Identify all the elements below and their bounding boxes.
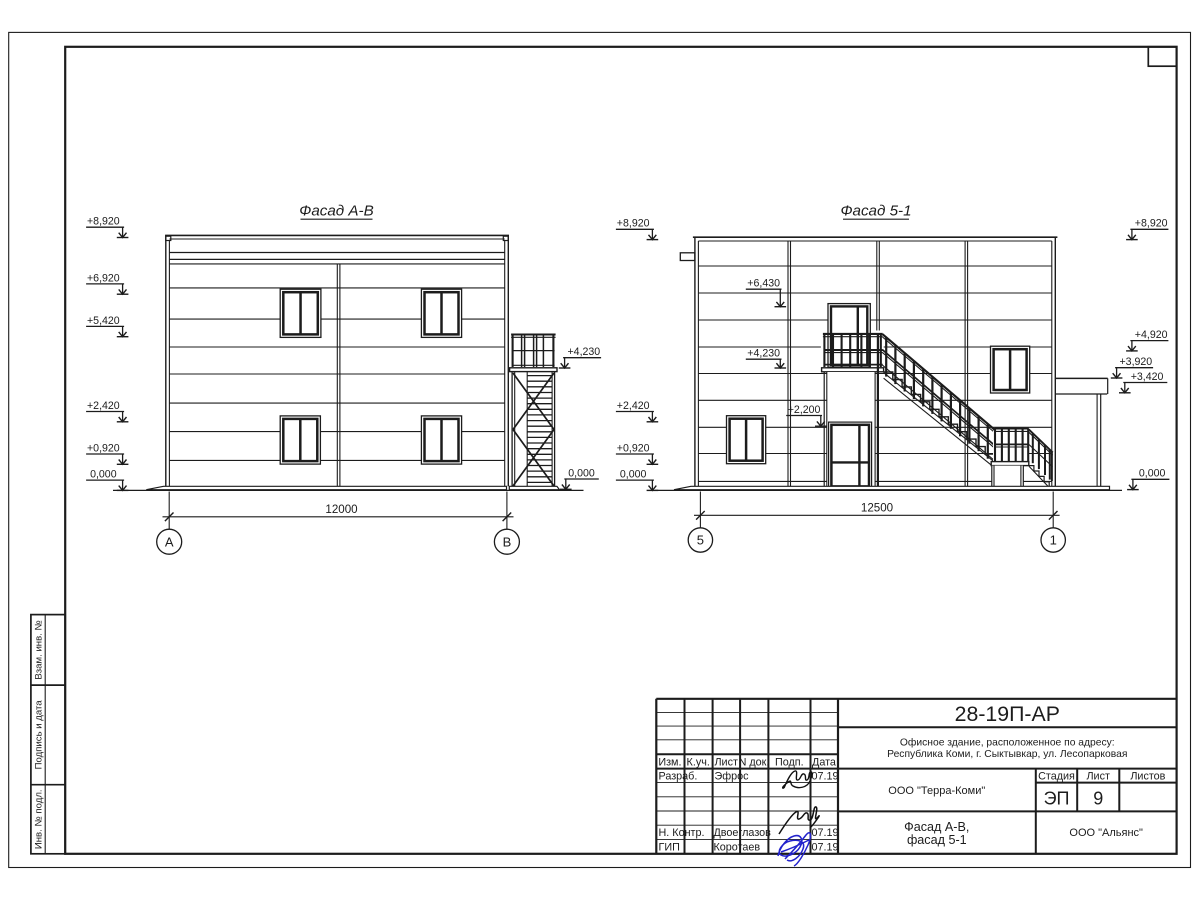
svg-text:ООО "Альянс": ООО "Альянс"	[1069, 827, 1143, 839]
svg-text:ЭП: ЭП	[1044, 789, 1070, 809]
svg-text:Республика Коми, г. Сыктывкар,: Республика Коми, г. Сыктывкар, ул. Лесоп…	[887, 748, 1127, 760]
svg-text:0,000: 0,000	[1139, 468, 1166, 480]
svg-text:К.уч.: К.уч.	[687, 756, 710, 768]
svg-text:0,000: 0,000	[90, 469, 117, 481]
svg-text:Фасад А-В: Фасад А-В	[299, 203, 374, 220]
svg-text:+3,920: +3,920	[1119, 356, 1152, 368]
svg-text:5: 5	[697, 533, 704, 548]
svg-text:+0,920: +0,920	[617, 442, 650, 454]
svg-text:Коротаев: Коротаев	[714, 842, 761, 854]
svg-text:Фасад А-В,: Фасад А-В,	[904, 820, 969, 834]
svg-text:Подпись и дата: Подпись и дата	[34, 700, 45, 770]
svg-text:фасад 5-1: фасад 5-1	[907, 833, 967, 847]
svg-text:+8,920: +8,920	[1135, 218, 1168, 230]
svg-text:1: 1	[1050, 533, 1057, 548]
svg-text:+4,230: +4,230	[747, 348, 780, 360]
svg-text:0,000: 0,000	[568, 467, 595, 479]
svg-text:Фасад 5-1: Фасад 5-1	[840, 203, 911, 220]
svg-text:ООО "Терра-Коми": ООО "Терра-Коми"	[888, 785, 985, 797]
svg-text:Н. Контр.: Н. Контр.	[659, 827, 705, 839]
svg-text:+2,200: +2,200	[788, 404, 821, 416]
svg-text:Инв. № подл.: Инв. № подл.	[34, 789, 45, 849]
svg-text:+6,920: +6,920	[87, 272, 120, 284]
svg-text:+6,430: +6,430	[747, 278, 780, 290]
svg-text:Стадия: Стадия	[1038, 771, 1075, 783]
svg-text:Двоеглазов: Двоеглазов	[714, 827, 772, 839]
svg-text:28-19П-АР: 28-19П-АР	[955, 702, 1060, 726]
svg-text:В: В	[503, 534, 512, 549]
svg-text:07.19: 07.19	[812, 842, 839, 854]
svg-text:Листов: Листов	[1130, 771, 1165, 783]
svg-text:+8,920: +8,920	[87, 216, 120, 228]
svg-text:Лист: Лист	[714, 756, 738, 768]
svg-text:07.19: 07.19	[812, 827, 839, 839]
svg-text:ГИП: ГИП	[659, 842, 680, 854]
svg-text:0,000: 0,000	[620, 469, 647, 481]
svg-text:+3,420: +3,420	[1131, 371, 1164, 383]
svg-text:+2,420: +2,420	[87, 400, 120, 412]
svg-text:Разраб.: Разраб.	[659, 770, 698, 782]
svg-text:12000: 12000	[325, 503, 357, 516]
svg-text:07.19: 07.19	[812, 770, 839, 782]
svg-text:+8,920: +8,920	[617, 218, 650, 230]
svg-text:Офисное здание, расположенное: Офисное здание, расположенное по адресу:	[900, 737, 1115, 749]
svg-text:А: А	[165, 534, 174, 549]
svg-text:Подп.: Подп.	[775, 756, 804, 768]
svg-text:9: 9	[1093, 789, 1103, 809]
svg-text:Взам. инв. №: Взам. инв. №	[34, 620, 45, 679]
svg-text:+5,420: +5,420	[87, 315, 120, 327]
svg-text:+0,920: +0,920	[87, 442, 120, 454]
svg-text:Изм.: Изм.	[658, 756, 681, 768]
svg-text:+4,230: +4,230	[567, 346, 600, 358]
svg-text:+4,920: +4,920	[1135, 329, 1168, 341]
svg-text:Лист: Лист	[1086, 771, 1110, 783]
svg-text:12500: 12500	[861, 502, 893, 515]
svg-text:N док.: N док.	[739, 756, 770, 768]
svg-text:Дата: Дата	[812, 756, 836, 768]
svg-text:Эфрос: Эфрос	[715, 770, 750, 782]
svg-text:+2,420: +2,420	[617, 400, 650, 412]
